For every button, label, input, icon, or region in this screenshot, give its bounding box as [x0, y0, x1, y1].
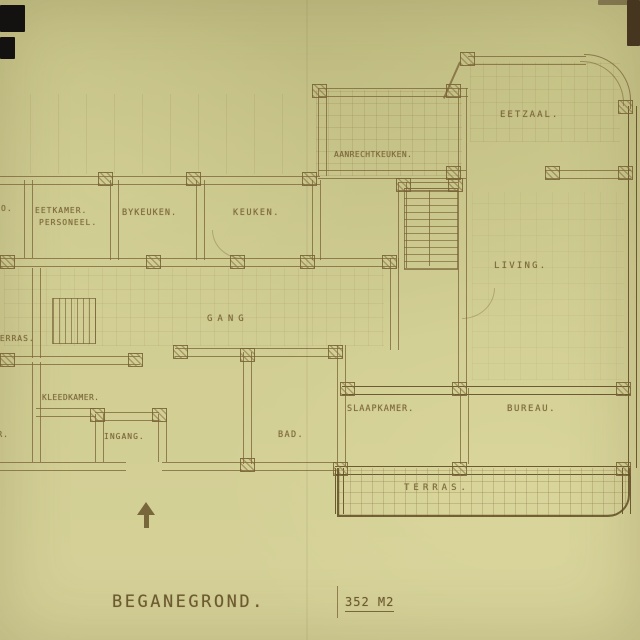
stairs-west: [52, 298, 96, 344]
room-label-aanrechtkeuken: AANRECHTKEUKEN.: [334, 150, 412, 159]
wall-segment: [335, 466, 631, 475]
wall-segment: [337, 345, 346, 467]
wall-segment: [32, 362, 41, 462]
pencil-grid: [316, 90, 462, 176]
wall-segment: [458, 88, 467, 388]
stairs-rail-line: [429, 190, 430, 266]
door-swing-arc: [462, 288, 495, 319]
wall-pillar: [90, 408, 105, 422]
room-label-slaapkamer: SLAAPKAMER.: [347, 404, 414, 414]
title-divider-line: [337, 586, 338, 618]
pencil-grid: [30, 94, 310, 174]
room-label-personeel: PERSONEEL.: [39, 218, 97, 227]
room-label-terras-west: TERRAS.: [0, 334, 35, 343]
room-label-living: LIVING.: [494, 261, 547, 271]
wall-pillar: [173, 345, 188, 359]
room-label-bykeuken: BYKEUKEN.: [122, 208, 177, 218]
scan-clip-mark: [0, 37, 15, 59]
wall-segment: [175, 348, 343, 357]
pencil-grid: [472, 192, 624, 380]
stairs-main: [404, 188, 458, 270]
wall-segment: [312, 180, 321, 260]
wall-pillar: [98, 172, 113, 186]
wall-pillar: [186, 172, 201, 186]
wall-pillar: [340, 382, 355, 396]
wall-segment: [318, 170, 466, 179]
room-label-slaapkamer-sw: SLAAPKAMER.: [0, 430, 9, 439]
wall-segment: [24, 180, 33, 258]
wall-segment: [468, 56, 586, 65]
wall-pillar: [452, 462, 467, 476]
wall-pillar: [545, 166, 560, 180]
scan-seam: [306, 0, 308, 640]
wall-segment: [36, 408, 96, 417]
wall-pillar: [128, 353, 143, 367]
wall-segment: [628, 106, 637, 468]
terrace: [337, 468, 630, 517]
wall-pillar: [152, 408, 167, 422]
room-label-eetkamer: EETKAMER.: [35, 206, 87, 215]
wall-segment: [0, 176, 320, 185]
wall-segment: [196, 180, 205, 260]
floor-plan-scan: EETZAAL. AANRECHTKEUKEN. EETKAMER. PERSO…: [0, 0, 640, 640]
wall-segment: [32, 268, 41, 358]
wall-pillar: [302, 172, 317, 186]
plan-title: BEGANEGROND.: [112, 592, 265, 612]
wall-pillar: [146, 255, 161, 269]
entrance-arrow-icon: [137, 502, 155, 515]
room-label-eetzaal: EETZAAL.: [500, 110, 559, 120]
wall-pillar: [240, 348, 255, 362]
wall-segment: [110, 180, 119, 260]
wall-segment: [460, 388, 469, 464]
wall-pillar: [0, 255, 15, 269]
wall-pillar: [328, 345, 343, 359]
wall-pillar: [460, 52, 475, 66]
wall-pillar: [333, 462, 348, 476]
wall-pillar: [0, 353, 15, 367]
room-label-gang: GANG: [207, 314, 249, 324]
scan-dark-edge: [598, 0, 640, 5]
wall-segment: [0, 356, 140, 365]
room-label-bureau: BUREAU.: [507, 404, 556, 414]
room-label-keuken: KEUKEN.: [233, 208, 280, 218]
wall-pillar: [452, 382, 467, 396]
door-swing-arc: [212, 230, 243, 259]
wall-pillar: [312, 84, 327, 98]
wall-pillar: [240, 458, 255, 472]
room-label-bad: BAD.: [278, 430, 304, 440]
plan-area-value: 352 M2: [345, 595, 394, 612]
wall-pillar: [382, 255, 397, 269]
room-label-terras: TERRAS.: [404, 483, 470, 493]
wall-segment: [0, 462, 126, 471]
wall-pillar: [616, 382, 631, 396]
wall-segment: [318, 88, 327, 176]
wall-pillar: [618, 166, 633, 180]
wall-pillar: [616, 462, 631, 476]
wall-segment: [342, 386, 630, 395]
room-label-ingang: INGANG.: [104, 432, 145, 441]
scan-clip-mark: [0, 5, 25, 32]
wall-segment: [390, 258, 399, 350]
room-label-clipped: O.: [1, 204, 13, 213]
wall-segment: [243, 352, 252, 464]
scan-dark-corner: [627, 0, 640, 46]
room-label-kleedkamer: KLEEDKAMER.: [42, 393, 99, 402]
entrance-arrow-stem: [144, 515, 149, 528]
